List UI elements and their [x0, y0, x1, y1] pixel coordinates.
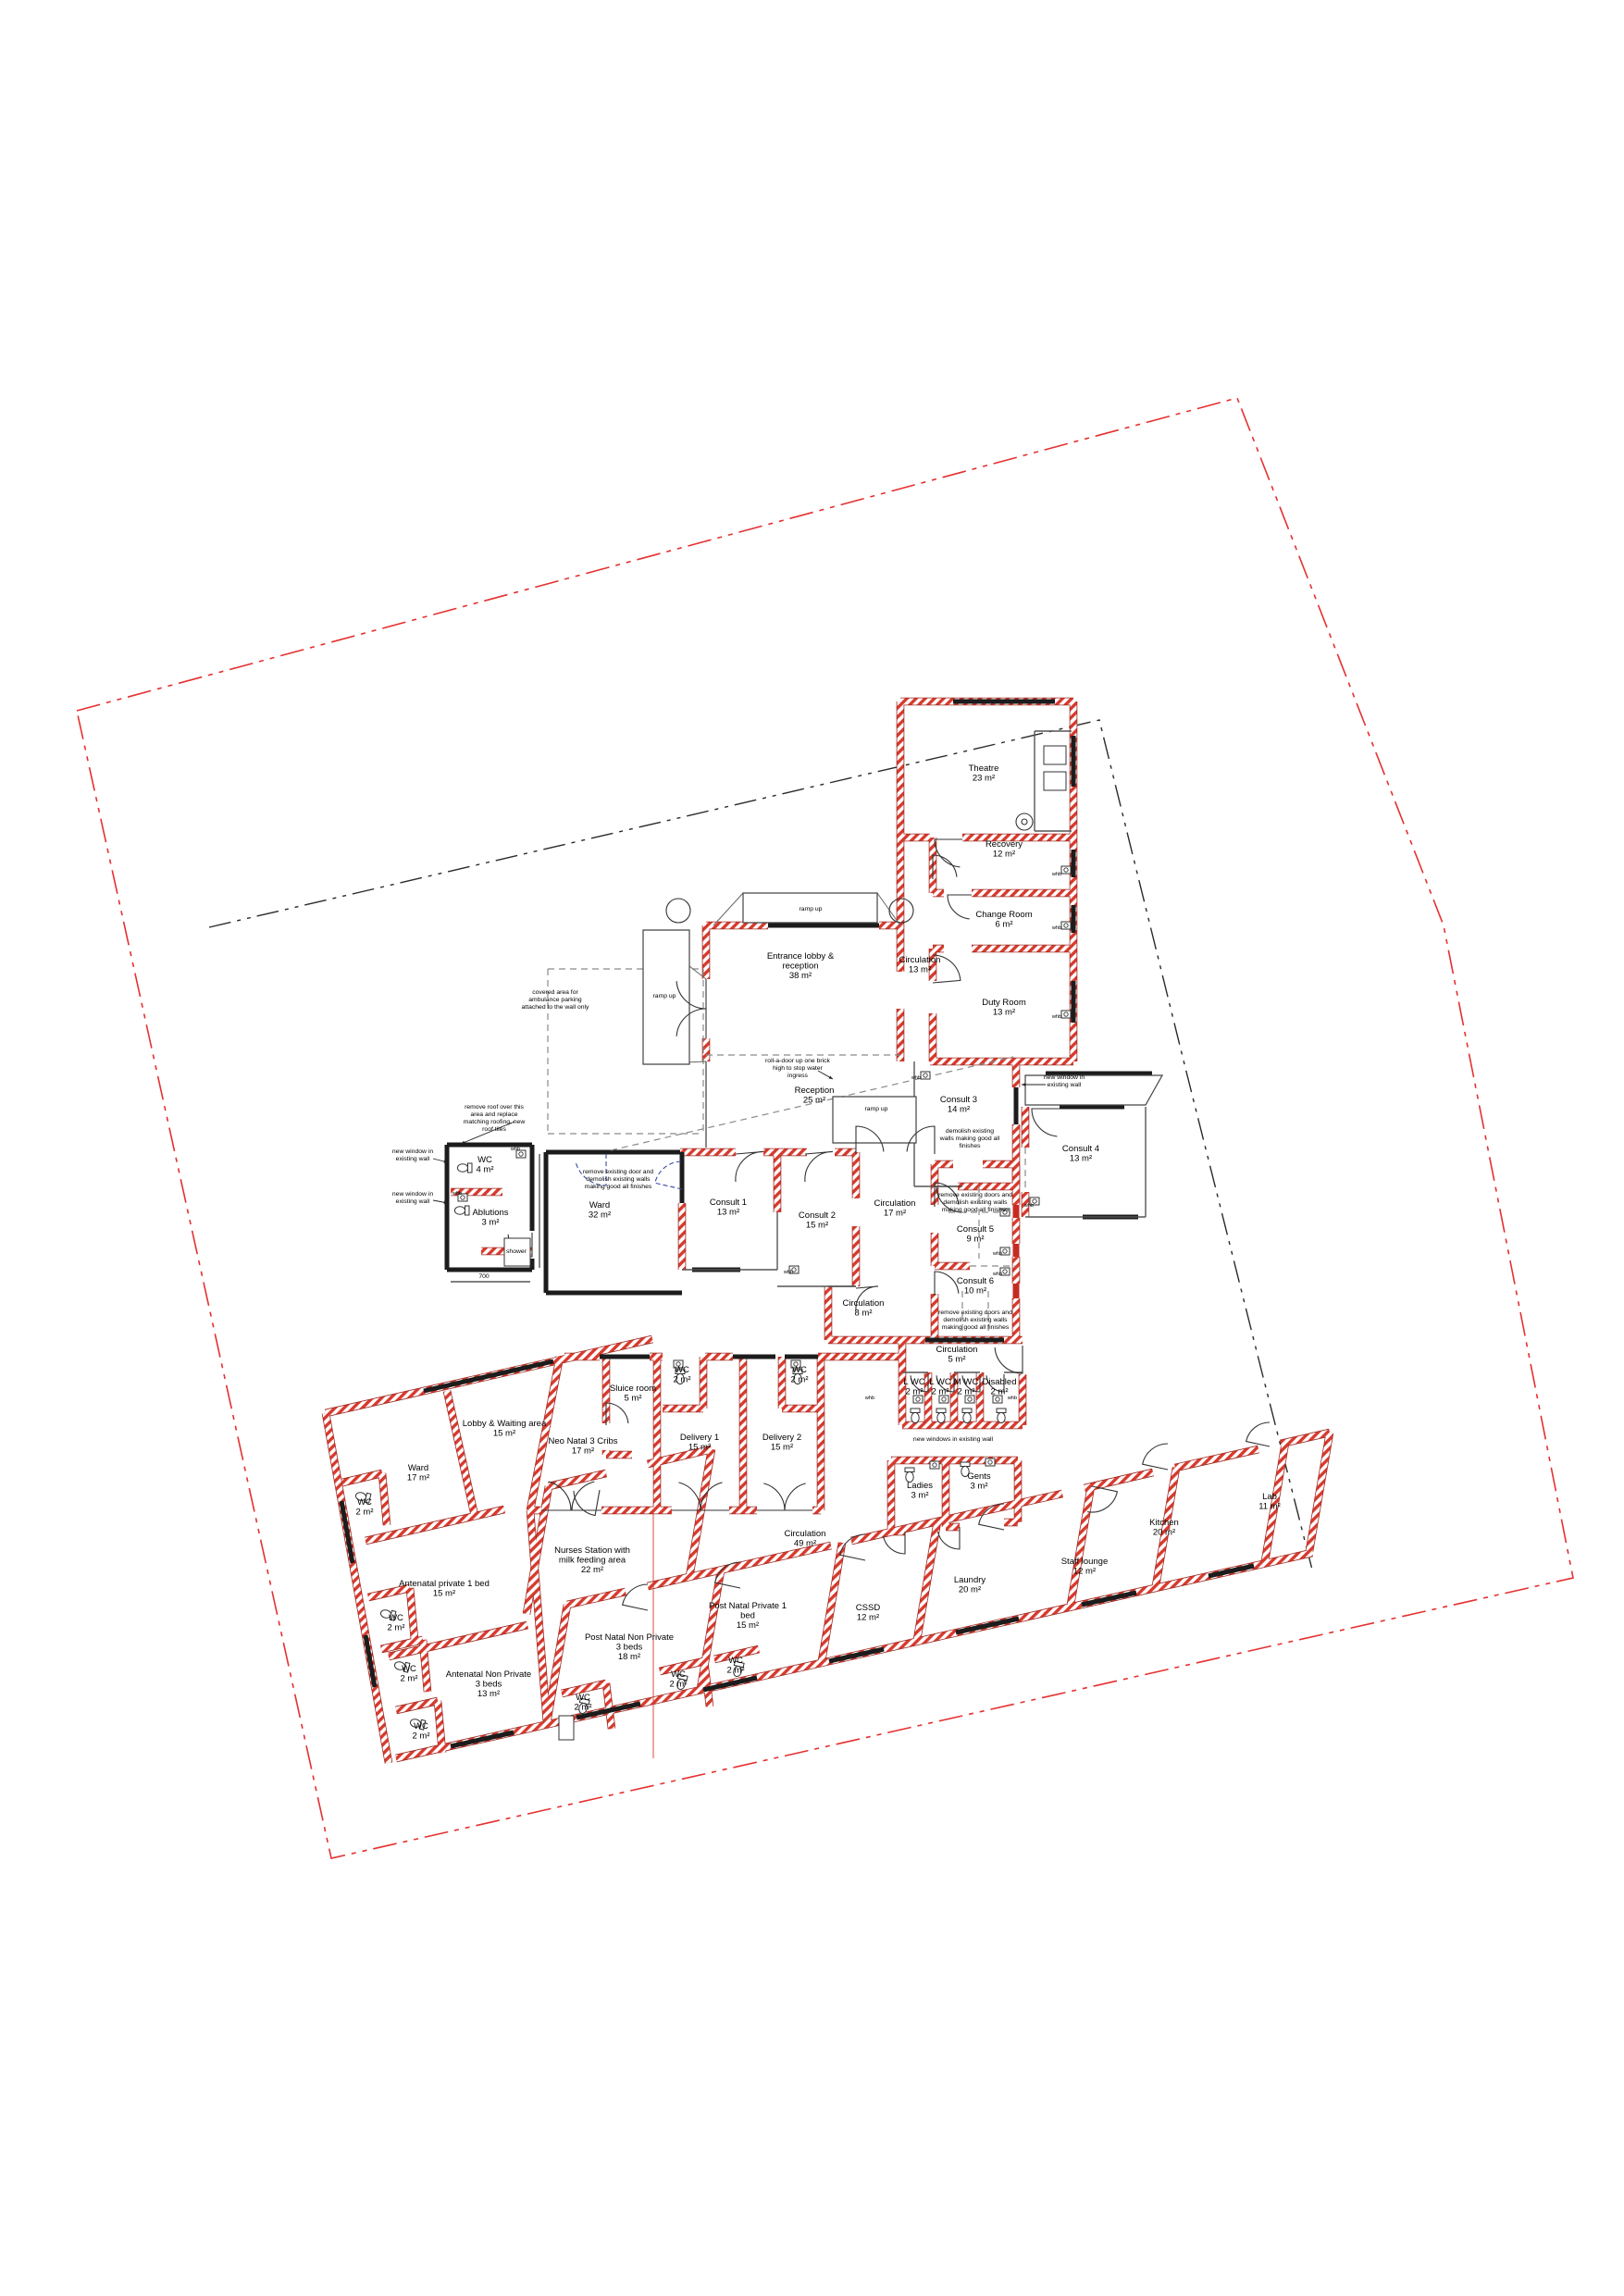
room-label: Change Room6 m² — [975, 910, 1032, 930]
sink-icon — [559, 1716, 574, 1740]
door-swing-icon — [948, 895, 972, 919]
ramp-up-label: ramp up — [865, 1106, 888, 1112]
annotation-note: shower — [506, 1248, 527, 1255]
room-label: L WC2 m² — [903, 1377, 925, 1397]
sink-icon — [1044, 772, 1066, 790]
room-label: Duty Room13 m² — [982, 998, 1026, 1018]
annotation-note: new window inexisting wall — [392, 1191, 433, 1205]
wall-existing — [829, 1649, 884, 1661]
whb-label: whb — [783, 1270, 793, 1275]
new-door-swing-icon — [655, 1161, 682, 1189]
wall-hatch — [648, 1545, 831, 1586]
whb-label: whb — [1051, 1014, 1061, 1020]
whb-label: whb — [911, 1075, 921, 1081]
annotation-note: covered area forambulance parkingattache… — [522, 989, 590, 1011]
toilet-icon — [454, 1206, 469, 1215]
wall-hatch — [1085, 1472, 1153, 1488]
wall-hatch — [396, 1701, 438, 1710]
canopy-slant — [713, 893, 743, 925]
room-label: Nurses Station withmilk feeding area22 m… — [554, 1545, 630, 1575]
whb-label: whb — [1023, 1203, 1034, 1209]
wall-existing — [424, 1361, 553, 1391]
wall-hatch — [937, 1494, 1062, 1521]
room-label: Ablutions3 m² — [472, 1208, 508, 1228]
door-swing-icon — [1246, 1422, 1270, 1446]
canopy-outline — [833, 1097, 916, 1143]
room-label: Kitchen20 m² — [1149, 1518, 1179, 1538]
floor-plan-sheet: Theatre23 m²Recovery12 m²Change Room6 m²… — [0, 0, 1624, 2296]
door-swing-icon — [757, 1483, 785, 1510]
door-swing-icon — [574, 1490, 600, 1516]
room-label: Recovery12 m² — [986, 839, 1023, 860]
door-swing-icon — [736, 1151, 763, 1182]
leader-arrowhead — [1022, 1083, 1025, 1086]
annotation-note: new window inexisting wall — [392, 1148, 433, 1162]
room-label: WC2 m² — [388, 1613, 405, 1633]
wall-existing — [451, 1732, 514, 1746]
room-label: L WC2 m² — [929, 1377, 951, 1397]
door-swing-icon — [1032, 1109, 1060, 1136]
wall-hatch — [549, 1473, 606, 1486]
toilet-icon — [911, 1409, 920, 1423]
door-swing-icon — [995, 1346, 1023, 1373]
room-label: Staff lounge12 m² — [1061, 1557, 1109, 1577]
room-label: Circulation17 m² — [874, 1198, 916, 1219]
wall-hatch — [368, 1588, 410, 1597]
wall-hatch — [410, 1588, 415, 1640]
room-label: WC2 m² — [791, 1365, 809, 1385]
whb-label: whb — [1051, 925, 1061, 931]
room-label: Lobby & Waiting area15 m² — [463, 1419, 547, 1439]
whb-label: whb — [452, 1191, 462, 1197]
reference-bubble — [666, 899, 690, 923]
room-label: WC4 m² — [477, 1155, 494, 1175]
door-swing-icon — [785, 1483, 812, 1510]
ramp-up-label: ramp up — [800, 906, 823, 912]
door-swing-icon — [935, 1272, 959, 1296]
annotation-note: new window inexisting wall — [1044, 1074, 1085, 1088]
room-label: Consult 59 m² — [957, 1224, 994, 1245]
room-label: Disabled2 m² — [983, 1377, 1017, 1397]
room-label: WC2 m² — [670, 1669, 688, 1690]
room-label: WC2 m² — [727, 1656, 745, 1676]
room-label: Ladies3 m² — [907, 1481, 933, 1501]
toilet-icon — [997, 1409, 1006, 1423]
washbasin-icon — [1061, 922, 1071, 929]
reference-bubble — [1022, 819, 1027, 825]
wall-hatch — [342, 1473, 382, 1483]
wall-hatch — [1071, 1486, 1091, 1605]
building-walls — [326, 701, 1330, 1763]
wall-hatch — [917, 1521, 937, 1640]
annotation-note: remove roof over thisarea and replacemat… — [464, 1104, 526, 1133]
room-label: Reception25 m² — [795, 1086, 835, 1106]
door-swing-icon — [935, 839, 962, 867]
door-swing-icon — [805, 1151, 833, 1182]
room-label: Theatre23 m² — [969, 763, 999, 784]
room-label: Consult 113 m² — [710, 1198, 747, 1218]
room-label: Delivery 215 m² — [762, 1433, 801, 1453]
room-label: WC2 m² — [674, 1365, 691, 1385]
annotation-note: 700 — [478, 1273, 490, 1280]
annotation-note: remove existing door anddemolish existin… — [583, 1169, 654, 1190]
wall-hatch — [1175, 1449, 1258, 1468]
wall-hatch — [326, 1413, 389, 1763]
whb-label: whb — [1051, 872, 1061, 877]
reference-bubble — [1016, 813, 1033, 830]
room-label: M WC2 m² — [954, 1377, 979, 1397]
room-label: Consult 215 m² — [799, 1210, 836, 1231]
annotation-note: demolish existingwalls making good allfi… — [939, 1128, 1000, 1149]
wall-existing — [956, 1619, 1019, 1632]
room-label: Antenatal Non Private3 beds13 m² — [446, 1669, 531, 1699]
room-label: CSSD12 m² — [856, 1603, 881, 1623]
room-label: Sluice room5 m² — [610, 1384, 656, 1404]
wall-hatch — [382, 1473, 387, 1525]
room-label: Circulation8 m² — [843, 1298, 885, 1319]
whb-label: whb — [992, 1272, 1002, 1277]
wall-hatch — [423, 1640, 428, 1692]
door-swing-icon — [1143, 1444, 1168, 1470]
leader-arrowhead — [461, 1141, 465, 1144]
room-label: Ward32 m² — [589, 1200, 611, 1221]
sink-icon — [1044, 746, 1066, 764]
room-label: Post Natal Private 1bed15 m² — [709, 1601, 787, 1631]
room-label: WC2 m² — [575, 1693, 592, 1713]
room-label: WC2 m² — [401, 1664, 418, 1684]
room-label: WC2 m² — [413, 1721, 430, 1742]
room-label: Delivery 115 m² — [680, 1433, 719, 1453]
whb-label: whb — [1007, 1396, 1017, 1401]
washbasin-icon — [930, 1461, 939, 1469]
annotation-note: remove existing doors anddemolish existi… — [938, 1309, 1012, 1331]
washbasin-icon — [1061, 1011, 1071, 1018]
whb-label: whb — [510, 1147, 520, 1152]
washbasin-icon — [921, 1072, 930, 1079]
wall-hatch — [822, 1543, 842, 1661]
wall-hatch — [1309, 1433, 1330, 1551]
wall-hatch — [689, 1449, 712, 1577]
whb-label: whb — [992, 1251, 1002, 1257]
room-label: Gents3 m² — [967, 1471, 991, 1492]
room-label: WC2 m² — [356, 1497, 374, 1518]
room-label: Consult 413 m² — [1062, 1144, 1099, 1164]
wall-hatch — [447, 1391, 475, 1516]
wall-hatch — [547, 1605, 567, 1723]
room-label: Consult 314 m² — [940, 1095, 977, 1115]
annotation-note: new windows in existing wall — [913, 1436, 994, 1443]
site-boundary-black — [209, 720, 1313, 1573]
door-swing-icon — [672, 1483, 700, 1510]
ramp-up-label: ramp up — [653, 993, 676, 999]
room-label: Circulation5 m² — [936, 1345, 978, 1365]
toilet-icon — [936, 1409, 946, 1423]
room-label: Entrance lobby &reception38 m² — [767, 951, 835, 981]
toilet-icon — [457, 1163, 472, 1173]
room-label: Laundry20 m² — [954, 1575, 986, 1595]
room-label: Post Natal Non Private3 beds18 m² — [585, 1632, 674, 1662]
annotation-note: remove existing doors anddemolish existi… — [938, 1192, 1012, 1213]
whb-label: whb — [864, 1396, 874, 1401]
toilet-icon — [962, 1409, 972, 1423]
door-swing-icon — [623, 1584, 648, 1610]
annotation-note: roll-a-door up one brickhigh to stop wat… — [765, 1058, 830, 1079]
floor-plan-canvas: Theatre23 m²Recovery12 m²Change Room6 m²… — [0, 0, 1624, 2296]
room-label: Ward17 m² — [407, 1463, 429, 1483]
wall-hatch — [567, 1592, 626, 1605]
washbasin-icon — [1061, 866, 1071, 874]
washbasin-icon — [986, 1458, 995, 1466]
